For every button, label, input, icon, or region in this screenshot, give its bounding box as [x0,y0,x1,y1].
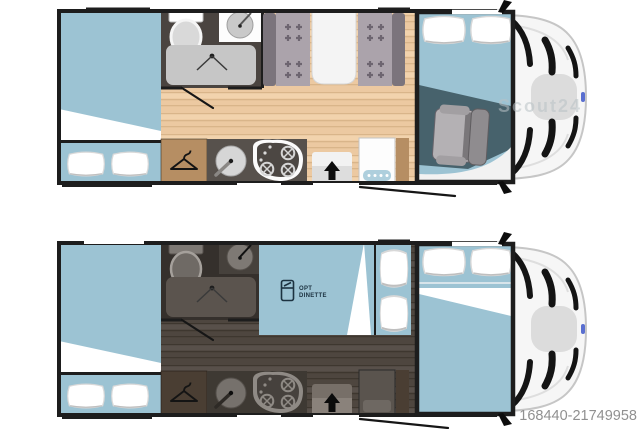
dinette [263,10,405,86]
counter-end-panel [396,370,409,416]
window [62,415,152,420]
pillow [423,248,465,275]
pillow [423,16,465,43]
bench-seat [276,13,310,86]
pillow [112,384,149,408]
shower-tray [166,277,256,317]
entry-door-opening [313,183,359,188]
opt-dinette-label-line1: OPT [299,286,312,292]
opt-dinette-label-line2: DINETTE [299,293,327,299]
window [84,240,144,245]
cab-area [417,232,513,426]
motorhome-floorplans-svg: Scout24 [0,0,640,429]
pillow [380,296,408,331]
listing-id: 168440-21749958 [519,408,637,424]
bench-backrest [263,13,276,86]
open-entry-door [360,419,448,428]
cab-window [452,10,502,14]
bench-backrest [392,13,405,86]
pillow [112,152,149,176]
optional-dinette-bed: OPT DINETTE [259,243,411,335]
dinette-table [312,10,356,84]
window [62,183,152,188]
plan-day: Scout24 [57,0,586,196]
floorplan-image: Scout24 [0,0,640,429]
entry-step [312,384,352,416]
service-hatch [237,183,281,188]
pillow [68,384,105,408]
window [378,240,410,245]
open-entry-door [360,187,455,196]
fridge-cabinet [359,370,395,416]
cab-window [452,242,502,246]
rear-bed [57,11,161,183]
window [86,8,150,13]
cab-seat [432,104,490,168]
electric-step [363,400,391,412]
kitchen [207,139,307,184]
entry-step [312,152,352,184]
counter-end-panel [396,138,409,184]
window [378,8,410,13]
kitchen [207,371,307,416]
entry-door-opening [313,415,359,420]
pillow [380,250,408,286]
pillow [68,152,105,176]
pillow [471,16,511,43]
pillow [471,248,511,275]
shower-tray [166,45,256,85]
plan-night: OPT DINETTE [57,232,586,428]
wardrobe [161,139,207,184]
bench-seat [358,13,392,86]
rear-bed [57,243,161,415]
fridge-cabinet [359,138,395,184]
wardrobe [161,371,207,416]
watermark: Scout24 [498,96,582,116]
service-hatch [237,415,281,420]
